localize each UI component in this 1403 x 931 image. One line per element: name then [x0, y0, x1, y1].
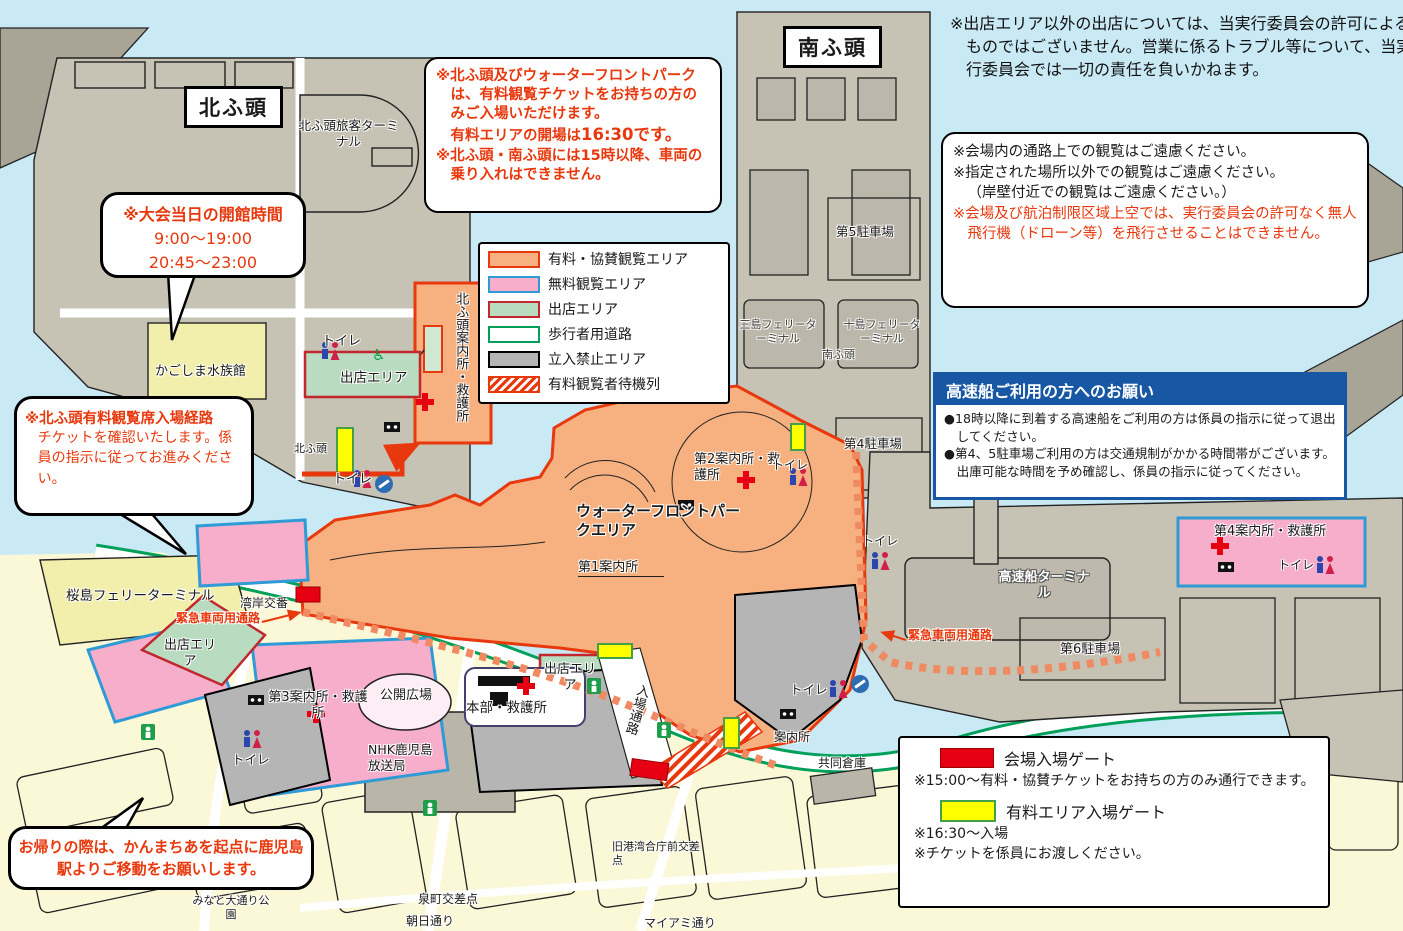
label-izumicho-crossing: 泉町交差点: [418, 892, 478, 907]
legend-queue-label: 有料観覧者待機列: [548, 374, 660, 394]
label-info1: 第1案内所: [578, 560, 664, 577]
aquarium-hours-time1: 9:00〜19:00: [107, 225, 299, 249]
speedboat-b1: ●18時以降に到着する高速船をご利用の方は係員の指示に従って退出してください。: [944, 410, 1336, 445]
kita-futo-title: 北ふ頭: [184, 86, 283, 128]
label-toilet-7: トイレ: [790, 682, 828, 698]
legend-row-stall: 出店エリア: [488, 299, 720, 319]
ticket-notice-p2: 有料エリアの開場は: [451, 128, 582, 144]
venue-gate-note: ※15:00〜有料・協賛チケットをお持ちの方のみ通行できます。: [914, 772, 1316, 791]
venue-gate-row: 会場入場ゲート: [940, 746, 1328, 770]
stalls-disclaimer: ※出店エリア以外の出店については、当実行委員会の許可によるものではございません。…: [950, 12, 1403, 82]
label-hq: 本部・救護所: [466, 700, 547, 717]
label-kita-terminal: 北ふ頭旅客ターミナル: [296, 118, 401, 149]
speedboat-b2: ●第4、5駐車場ご利用の方は交通規制がかかる時間帯がございます。出庫可能な時間を…: [944, 445, 1336, 480]
ticket-notice-p2-bold: 16:30です。: [581, 125, 681, 144]
label-info-booth: 案内所: [774, 730, 810, 745]
legend-pedestrian-label: 歩行者用道路: [548, 324, 632, 344]
return-route-bubble: お帰りの際は、かんまちあを起点に鹿児島駅よりご移動をお願いします。: [8, 826, 314, 890]
paid-gate-note1: ※16:30〜入場: [914, 825, 1316, 844]
label-miami-street: マイアミ通り: [644, 916, 716, 931]
aquarium-building: [148, 323, 266, 399]
legend-paid-label: 有料・協賛観覧エリア: [548, 249, 688, 269]
paid-area-swatch: [488, 251, 540, 268]
label-toilet-3: トイレ: [232, 752, 270, 768]
speedboat-title: 高速船ご利用の方へのお願い: [936, 375, 1344, 405]
free-area-swatch: [488, 276, 540, 293]
north-entry-bubble: ※北ふ頭有料観覧席入場経路 チケットを確認いたします。係員の指示に従ってお進みく…: [14, 396, 254, 516]
minami-futo-title: 南ふ頭: [783, 26, 882, 68]
gate-legend: 会場入場ゲート ※15:00〜有料・協賛チケットをお持ちの方のみ通行できます。 …: [898, 736, 1330, 908]
legend-row-free: 無料観覧エリア: [488, 274, 720, 294]
label-speedboat-terminal: 高速船ターミナル: [998, 570, 1090, 603]
label-stall-1: 出店エリア: [340, 370, 408, 387]
label-info4: 第4案内所・救護所: [1214, 524, 1326, 540]
label-parking6: 第6駐車場: [1060, 642, 1120, 658]
label-aquarium: かごしま水族館: [155, 364, 246, 380]
label-wangan-koban: 湾岸交番: [240, 596, 288, 611]
label-emergency-left: 緊急車両用通路: [176, 611, 260, 626]
label-old-port-crossing: 旧港湾合庁前交差点: [612, 840, 704, 868]
label-asahi-street: 朝日通り: [406, 914, 454, 929]
legend-row-paid: 有料・協賛観覧エリア: [488, 249, 720, 269]
label-toilet-6: トイレ: [1278, 558, 1314, 573]
ticket-notice-p1: ※北ふ頭及びウォーターフロントパークは、有料観覧チケットをお持ちの方のみご入場い…: [436, 67, 710, 124]
label-parking4: 第4駐車場: [844, 436, 902, 452]
label-emergency-right: 緊急車両用通路: [908, 628, 992, 643]
aquarium-hours-bubble: ※大会当日の開館時間 9:00〜19:00 20:45〜23:00: [100, 192, 306, 278]
venue-gate-label: 会場入場ゲート: [1004, 746, 1116, 770]
paid-gate-label: 有料エリア入場ゲート: [1006, 799, 1166, 823]
aquarium-hours-time2: 20:45〜23:00: [107, 249, 299, 273]
legend-noentry-label: 立入禁止エリア: [548, 349, 646, 369]
label-minami-small: 南ふ頭: [822, 348, 855, 362]
label-open-plaza: 公開広場: [380, 688, 432, 704]
viewing-rule-3: （岸壁付近での観覧はご遠慮ください。）: [953, 183, 1357, 204]
label-minato-park: みなと大通り公園: [188, 894, 274, 922]
paid-gate-swatch: [940, 800, 996, 822]
ticket-notice-panel: ※北ふ頭及びウォーターフロントパークは、有料観覧チケットをお持ちの方のみご入場い…: [424, 57, 722, 213]
no-entry-swatch: [488, 351, 540, 368]
label-nhk: NHK鹿児島放送局: [368, 742, 434, 773]
viewing-rule-2: ※指定された場所以外での観覧はご遠慮ください。: [953, 163, 1357, 184]
paid-gate-row: 有料エリア入場ゲート: [940, 799, 1328, 823]
north-entry-title: ※北ふ頭有料観覧席入場経路: [25, 407, 243, 428]
label-toshima-ferry: 十島フェリーターミナル: [842, 318, 922, 346]
legend-row-queue: 有料観覧者待機列: [488, 374, 720, 394]
festival-venue-map: ♿ 北ふ頭 南ふ頭 北ふ頭旅客ターミナル かごしま水族館 トイレ 出店エリア 北…: [0, 0, 1403, 931]
label-toilet-4: トイレ: [772, 458, 808, 473]
label-kita-info: 北ふ頭案内所・救護所: [452, 292, 468, 442]
label-mishima-ferry: 三島フェリーターミナル: [738, 318, 818, 346]
label-toilet-2: トイレ: [333, 472, 372, 488]
viewing-rule-4: ※会場及び航泊制限区域上空では、実行委員会の許可なく無人飛行機（ドローン等）を飛…: [953, 204, 1357, 245]
label-info3: 第3案内所・救護所: [262, 690, 374, 723]
wheelchair-icon: ♿: [372, 346, 385, 364]
ticket-notice-p3: ※北ふ頭・南ふ頭には15時以降、車両の乗り入れはできません。: [436, 147, 710, 185]
label-toilet-5: トイレ: [862, 534, 898, 549]
viewing-rule-1: ※会場内の通路上での観覧はご遠慮ください。: [953, 142, 1357, 163]
label-kyodo-soko: 共同倉庫: [818, 756, 866, 771]
queue-swatch: [488, 376, 540, 393]
area-legend: 有料・協賛観覧エリア 無料観覧エリア 出店エリア 歩行者用道路 立入禁止エリア …: [478, 242, 730, 404]
kita-info-booth: [424, 326, 442, 372]
paid-gate-note2: ※チケットを係員にお渡しください。: [914, 845, 1316, 864]
label-sakurajima-ferry: 桜島フェリーターミナル: [66, 588, 215, 605]
north-entry-body: チケットを確認いたします。係員の指示に従ってお進みください。: [25, 428, 243, 489]
label-toilet-1: トイレ: [322, 334, 361, 350]
legend-row-noentry: 立入禁止エリア: [488, 349, 720, 369]
label-stall-2: 出店エリア: [162, 638, 218, 671]
stall-area-swatch: [488, 301, 540, 318]
speedboat-panel: 高速船ご利用の方へのお願い ●18時以降に到着する高速船をご利用の方は係員の指示…: [933, 372, 1347, 500]
aquarium-hours-title: ※大会当日の開館時間: [107, 201, 299, 225]
label-kita-small: 北ふ頭: [294, 442, 327, 456]
viewing-rules-panel: ※会場内の通路上での観覧はご遠慮ください。 ※指定された場所以外での観覧はご遠慮…: [941, 132, 1369, 308]
label-waterfront-park: ウォーターフロントパークエリア: [576, 502, 744, 540]
label-stall-3: 出店エリア: [542, 662, 598, 695]
legend-row-pedestrian: 歩行者用道路: [488, 324, 720, 344]
legend-free-label: 無料観覧エリア: [548, 274, 646, 294]
label-parking5: 第5駐車場: [836, 224, 894, 240]
pedestrian-road-swatch: [488, 326, 540, 343]
legend-stall-label: 出店エリア: [548, 299, 618, 319]
venue-gate-swatch: [940, 748, 994, 768]
